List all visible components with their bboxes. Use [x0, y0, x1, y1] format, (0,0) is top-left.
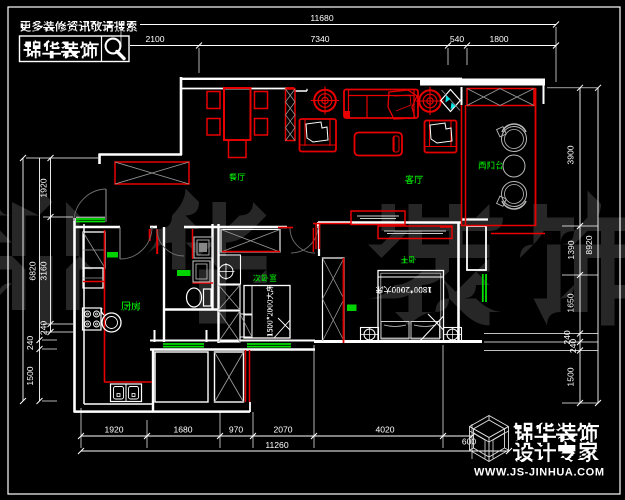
svg-text:240: 240: [25, 336, 35, 351]
svg-text:1920: 1920: [39, 178, 49, 197]
svg-text:1650: 1650: [566, 293, 576, 312]
svg-text:2100: 2100: [145, 34, 164, 44]
svg-text:6820: 6820: [28, 261, 38, 280]
svg-text:1800: 1800: [489, 34, 508, 44]
svg-text:4020: 4020: [375, 425, 394, 435]
svg-text:1500: 1500: [566, 367, 576, 386]
svg-text:WWW.JS-JINHUA.COM: WWW.JS-JINHUA.COM: [474, 467, 605, 479]
svg-text:1920: 1920: [104, 425, 123, 435]
svg-text:970: 970: [229, 425, 244, 435]
svg-text:8920: 8920: [584, 235, 594, 254]
svg-text:1390: 1390: [566, 240, 576, 259]
svg-text:240: 240: [39, 321, 49, 336]
svg-text:3900: 3900: [566, 145, 576, 164]
svg-text:11680: 11680: [310, 13, 333, 23]
svg-text:1680: 1680: [173, 425, 192, 435]
svg-text:7340: 7340: [310, 34, 329, 44]
svg-text:240: 240: [568, 339, 578, 354]
svg-text:1500: 1500: [25, 366, 35, 385]
svg-text:11260: 11260: [265, 440, 288, 450]
svg-text:2070: 2070: [273, 425, 292, 435]
svg-text:3160: 3160: [39, 261, 49, 280]
svg-text:540: 540: [450, 34, 465, 44]
